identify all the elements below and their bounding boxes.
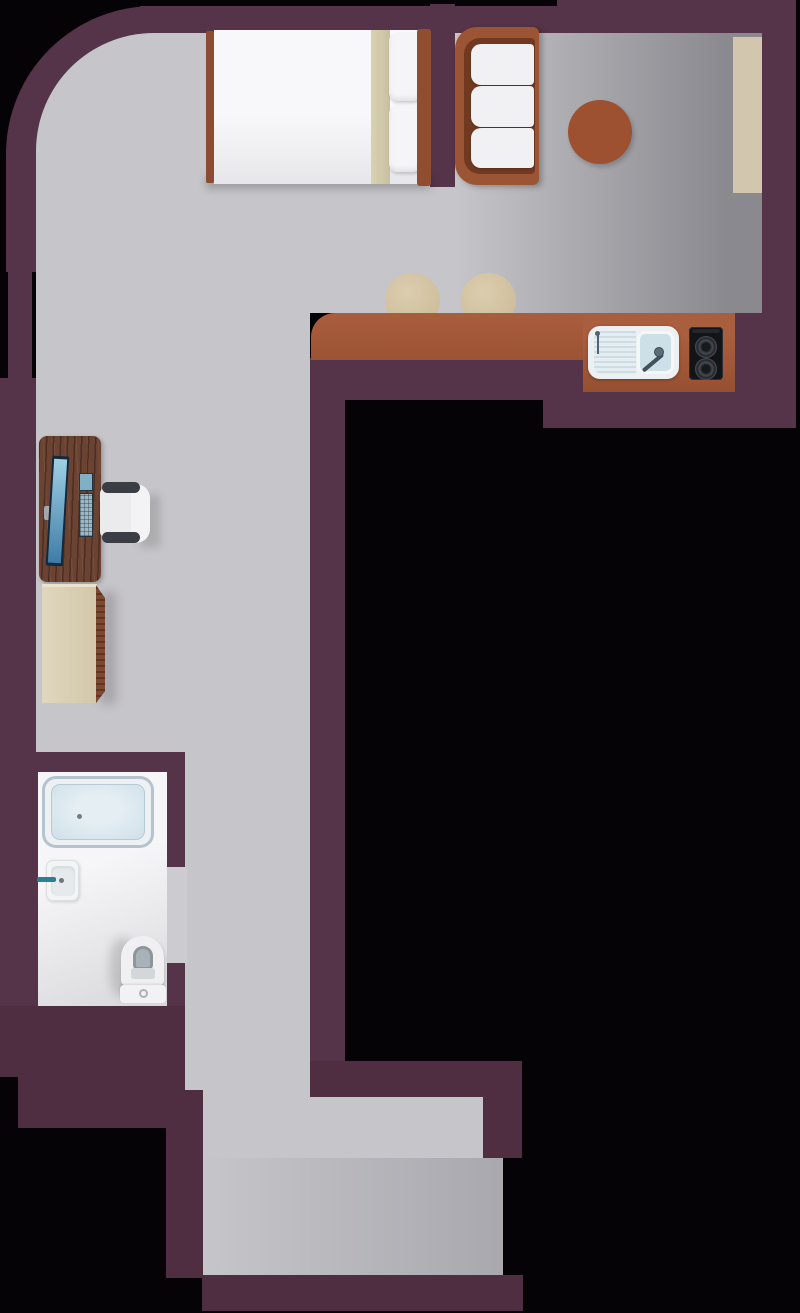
wall-lower-right-stub: [483, 1097, 522, 1158]
toilet-bowl-inner: [133, 946, 153, 970]
keyboard-tray-top: [79, 473, 93, 491]
wall-left-recess: [8, 272, 32, 378]
wall-top-right: [557, 0, 796, 37]
bed-footboard: [206, 31, 214, 183]
wall-below-bathroom-b: [18, 1077, 185, 1090]
wall-bathroom-right-lower: [167, 963, 187, 1006]
bed-blanket-fold: [371, 30, 390, 184]
round-side-table: [568, 100, 632, 164]
stove-burner: [695, 358, 717, 380]
wall-mid-horizontal: [310, 1061, 522, 1097]
bed-headboard: [417, 29, 431, 186]
toilet-flush-button: [139, 989, 148, 998]
wall-bottom: [202, 1275, 523, 1311]
wall-below-bathroom-a: [0, 1006, 185, 1077]
floor-corridor: [185, 752, 310, 1090]
bathroom-sink-faucet: [37, 877, 56, 882]
sofa-cushion: [471, 86, 534, 127]
stove-burner: [695, 336, 717, 358]
sink-faucet-head: [654, 347, 664, 357]
bathtub-basin: [51, 784, 145, 840]
wall-left-upper: [6, 150, 38, 272]
cabinet: [42, 584, 97, 703]
wall-bathroom-top: [38, 752, 185, 772]
wall-right: [762, 0, 796, 428]
cabinet-wood-edge: [96, 585, 105, 703]
bathroom-sink-knob: [59, 878, 64, 883]
keyboard: [79, 493, 93, 537]
wall-bed-sofa-divider: [430, 4, 455, 187]
floorplan: [0, 0, 800, 1313]
wall-left-lower: [0, 378, 38, 1006]
stove-control-strip: [692, 329, 720, 333]
window-ledge: [733, 37, 762, 193]
bathroom-door-opening: [167, 867, 187, 963]
wall-bathroom-right-upper: [167, 772, 187, 867]
sink-drainboard: [594, 331, 636, 374]
wall-bottom-left-column: [166, 1128, 203, 1278]
sofa-cushion: [471, 128, 534, 168]
bathtub-drain: [77, 814, 82, 819]
toilet-seat: [131, 968, 155, 979]
sink-pin: [597, 333, 599, 354]
wall-corridor-vertical: [310, 360, 345, 1065]
office-chair-armrest: [102, 532, 140, 543]
wall-below-bathroom-c: [18, 1090, 203, 1128]
floor-entry-room-upper: [203, 1097, 483, 1158]
wall-counter-right-end: [735, 313, 762, 413]
sink-pin-dot: [595, 331, 600, 336]
floor-entry-room-lower: [203, 1158, 503, 1275]
office-chair-armrest: [102, 482, 140, 493]
sofa-cushion: [471, 44, 534, 85]
